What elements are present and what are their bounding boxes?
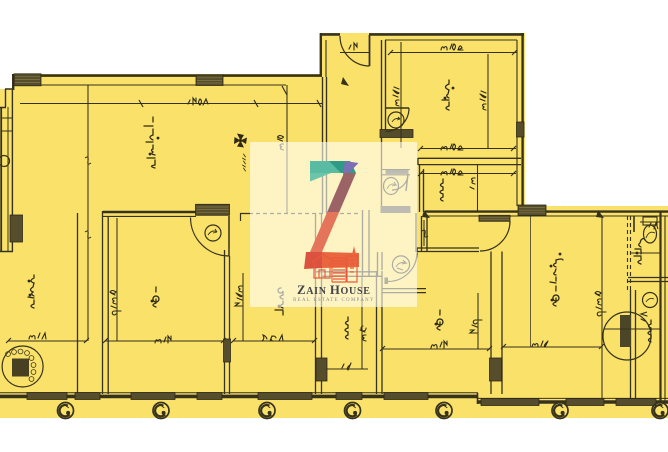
svg-text:REAL ESTATE COMPANY: REAL ESTATE COMPANY (293, 298, 375, 303)
svg-text:ZAIN HOUSE: ZAIN HOUSE (297, 283, 371, 297)
